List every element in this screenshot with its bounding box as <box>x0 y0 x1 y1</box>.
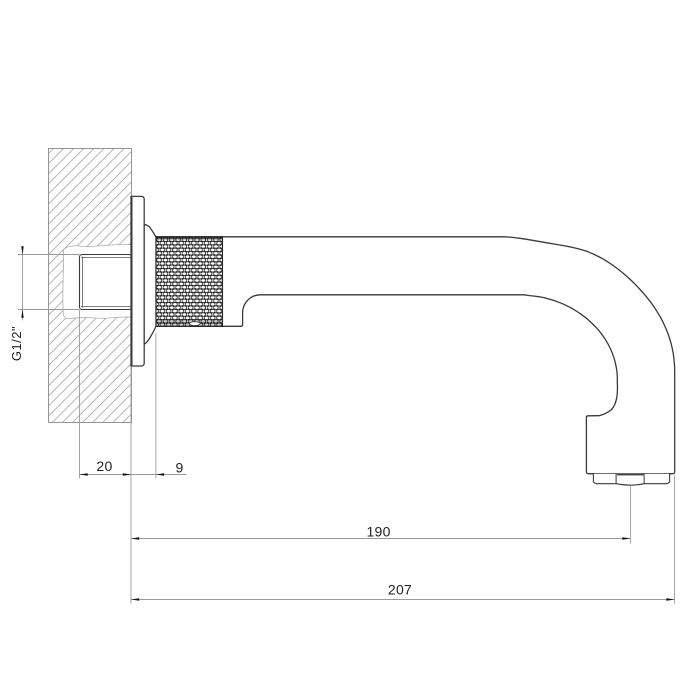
svg-text:G1/2": G1/2" <box>9 326 24 361</box>
svg-text:207: 207 <box>388 582 412 598</box>
svg-text:9: 9 <box>175 460 183 476</box>
svg-text:190: 190 <box>366 524 390 540</box>
svg-text:20: 20 <box>96 458 112 474</box>
